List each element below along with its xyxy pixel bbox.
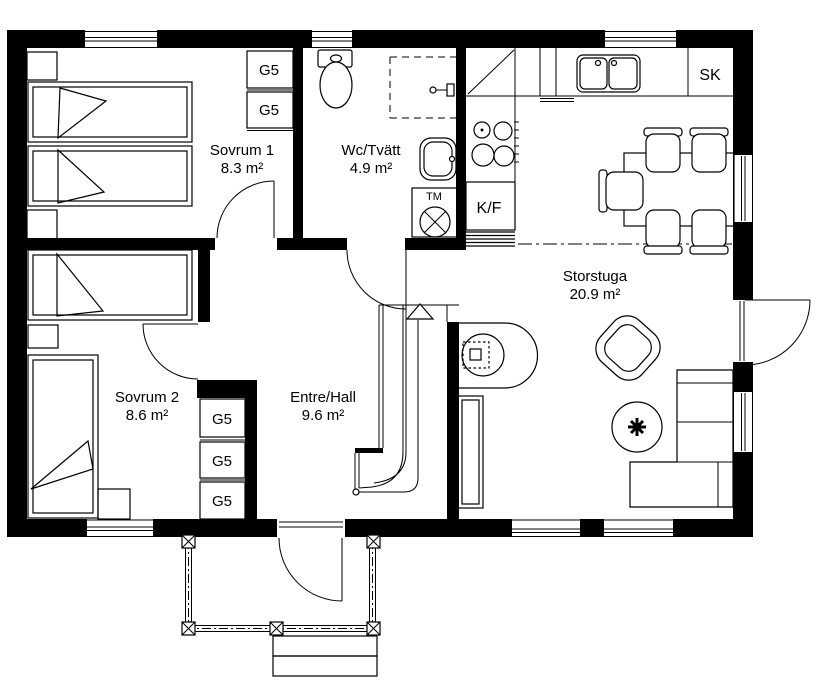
porch-post-icon xyxy=(367,622,380,635)
dining-chair-icon xyxy=(690,210,728,254)
tv-bench-icon xyxy=(458,396,483,508)
window-storstuga-east-1-icon xyxy=(733,155,753,222)
door-wc-icon xyxy=(347,250,406,309)
door-balcony-icon xyxy=(733,300,810,365)
porch-post-icon xyxy=(182,622,195,635)
room-label-sovrum2: Sovrum 2 xyxy=(115,389,179,406)
radiator-icon xyxy=(27,210,57,242)
window-storstuga-south-1-icon xyxy=(512,519,580,537)
radiator-icon xyxy=(27,52,57,80)
porch-post-icon xyxy=(270,622,283,635)
stair-walkline-icon xyxy=(353,304,433,495)
porch-rails-icon xyxy=(185,540,376,632)
dining-chair-icon xyxy=(690,128,728,172)
fridge-freezer-icon: K/F xyxy=(466,182,515,230)
plant-icon xyxy=(628,418,646,436)
fridge-freezer-label: K/F xyxy=(477,200,502,217)
room-area-storstuga: 20.9 m² xyxy=(570,286,621,303)
coffee-table-icon xyxy=(612,402,662,452)
dining-chair-icon xyxy=(644,210,682,254)
wardrobe-label: G5 xyxy=(212,453,232,470)
bed-icon xyxy=(28,355,98,518)
door-entry-icon xyxy=(279,522,343,601)
entry-steps-icon xyxy=(273,636,377,676)
cleaning-cabinet-label: SK xyxy=(699,67,721,84)
wardrobe-label: G5 xyxy=(259,62,279,79)
window-storstuga-south-2-icon xyxy=(604,519,673,537)
door-sovrum2-icon xyxy=(143,324,198,379)
washing-machine-label: TM xyxy=(426,191,442,203)
room-area-hall: 9.6 m² xyxy=(302,407,345,424)
room-label-storstuga: Storstuga xyxy=(563,268,628,285)
sofa-icon xyxy=(630,370,733,507)
dining-chair-icon xyxy=(644,128,682,172)
shower-area-icon xyxy=(390,57,456,118)
room-area-sovrum1: 8.3 m² xyxy=(221,160,264,177)
room-label-sovrum1: Sovrum 1 xyxy=(210,142,274,159)
room-label-wc: Wc/Tvätt xyxy=(341,142,401,159)
window-kitchen-north-icon xyxy=(605,30,676,48)
washing-machine-icon: TM xyxy=(412,188,458,237)
window-sovrum1-north-icon xyxy=(85,30,157,48)
radiator-icon xyxy=(28,325,58,348)
window-wc-north-icon xyxy=(312,30,352,48)
stair-icon xyxy=(353,304,459,495)
porch-post-icon xyxy=(367,535,380,548)
wardrobe-label: G5 xyxy=(212,411,232,428)
room-area-sovrum2: 8.6 m² xyxy=(126,407,169,424)
kitchen-fixtures: K/F SK xyxy=(466,48,734,254)
bed-icon xyxy=(28,82,192,142)
window-sovrum2-south-icon xyxy=(87,519,153,537)
fireplace-icon xyxy=(458,323,538,388)
washbasin-icon xyxy=(420,138,456,180)
outer-walls xyxy=(7,30,753,537)
bed-icon xyxy=(28,146,192,206)
floor-plan-canvas: TM K/F xyxy=(0,0,825,682)
toilet-icon xyxy=(318,50,352,108)
storstuga-furniture xyxy=(458,308,733,508)
room-label-hall: Entre/Hall xyxy=(290,389,356,406)
cleaning-cabinet-icon: SK xyxy=(688,48,733,96)
porch-post-icon xyxy=(182,535,195,548)
dining-chair-icon xyxy=(599,170,643,212)
vent-stripes-icon xyxy=(466,232,515,246)
stove-icon xyxy=(472,122,519,166)
door-sovrum1-icon xyxy=(217,181,274,238)
room-area-wc: 4.9 m² xyxy=(350,160,393,177)
wardrobe-label: G5 xyxy=(212,493,232,510)
floor-plan: TM K/F xyxy=(0,0,825,682)
sink-icon xyxy=(577,55,640,92)
nightstand-icon xyxy=(98,489,130,519)
wardrobe-label: G5 xyxy=(259,102,279,119)
bed-icon xyxy=(28,250,192,320)
armchair-icon xyxy=(588,308,667,387)
windows xyxy=(85,30,753,537)
window-storstuga-east-2-icon xyxy=(733,392,753,452)
